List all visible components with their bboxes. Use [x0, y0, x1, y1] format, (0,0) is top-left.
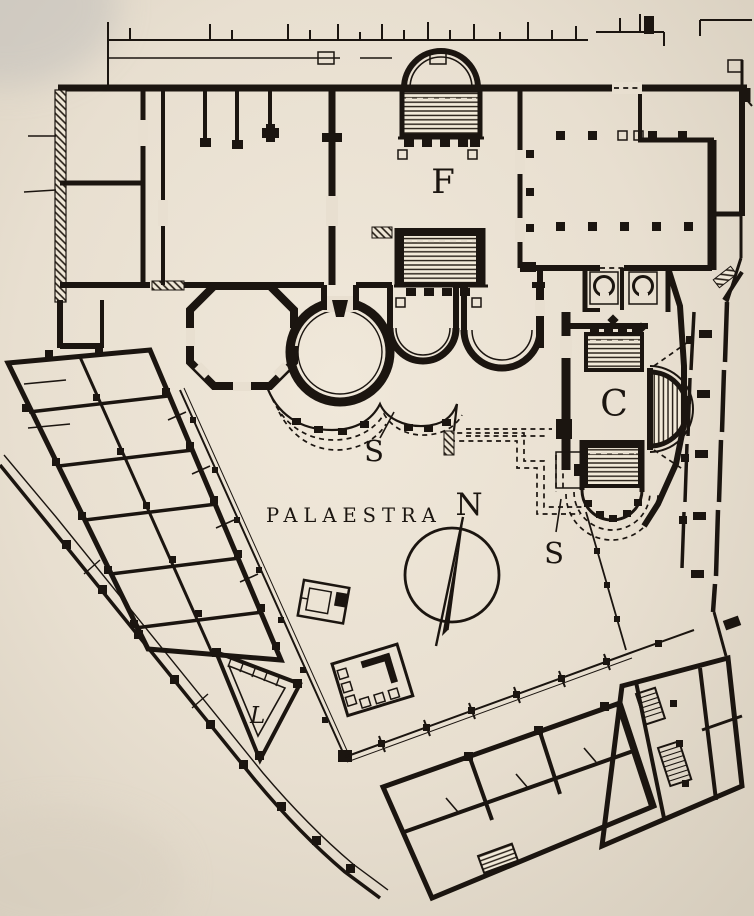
- floor-plan-drawing: F C S S PALAESTRA N L: [0, 0, 754, 916]
- label-caldarium: C: [600, 384, 628, 425]
- label-s-lower: S: [544, 536, 564, 570]
- label-l: L: [249, 703, 265, 729]
- label-compass-north: N: [455, 487, 482, 523]
- plan-figure: F C S S PALAESTRA N L: [0, 0, 754, 916]
- label-s-upper: S: [364, 434, 384, 468]
- label-palaestra: PALAESTRA: [266, 504, 442, 527]
- label-frigidarium: F: [431, 162, 455, 202]
